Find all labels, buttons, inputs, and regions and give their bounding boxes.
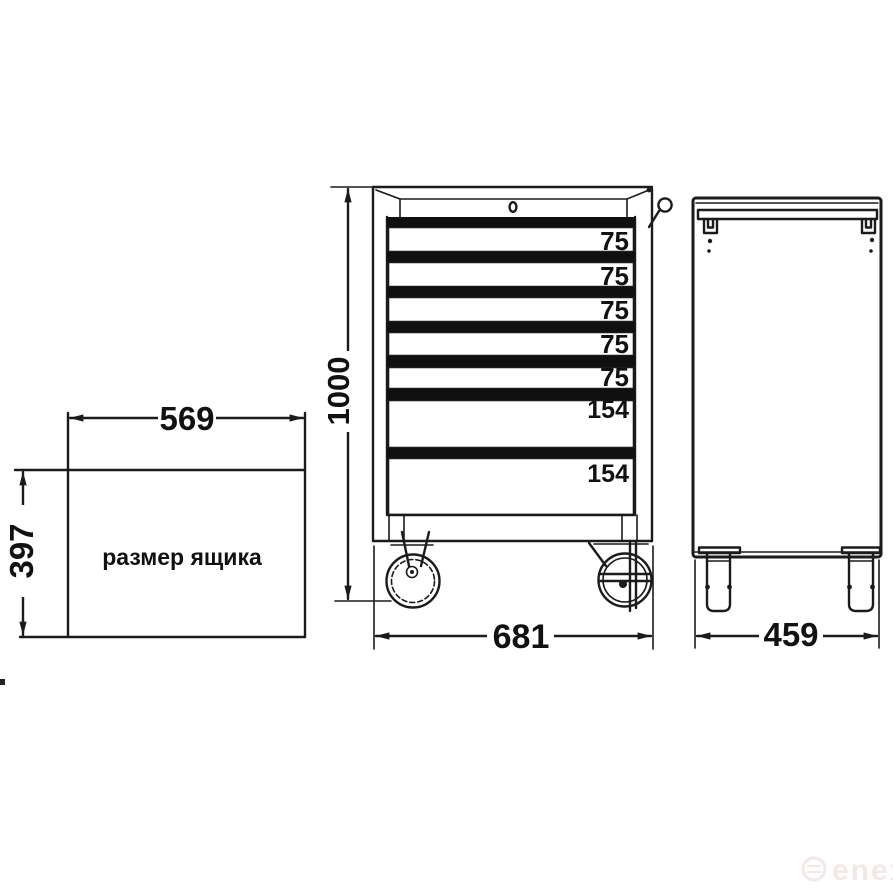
- dim-459: 459: [695, 560, 879, 653]
- watermark-logo-bars: [807, 866, 821, 872]
- left-axle-dot: [727, 585, 732, 590]
- drawer-height-label: 75: [600, 295, 629, 325]
- dim-label-569: 569: [159, 400, 214, 437]
- watermark: enex: [803, 854, 893, 887]
- dim-label-397: 397: [3, 523, 40, 578]
- watermark-text: enex: [832, 854, 893, 887]
- right-caster-fork-slant: [589, 543, 606, 566]
- top-tray: [376, 188, 651, 217]
- right-caster-hub-dot: [619, 580, 627, 588]
- drawer-handle: [387, 356, 635, 367]
- drawer-size-box-view: 569 397 размер ящика: [3, 400, 305, 637]
- drawer-height-label: 154: [587, 396, 629, 424]
- left-wheel-outer: [387, 555, 440, 608]
- dim-label-1000: 1000: [321, 357, 356, 426]
- left-caster-hub-dot: [410, 570, 414, 574]
- right-screw-dot: [870, 238, 874, 242]
- drawer-height-label: 154: [587, 460, 629, 488]
- left-screw-dot: [708, 239, 712, 243]
- dim-1000: 1000: [321, 187, 391, 601]
- drawer-front: [389, 228, 634, 252]
- key-ring: [658, 198, 671, 211]
- drawer-handle: [387, 287, 635, 297]
- right-caster-axle-bar: [600, 574, 651, 581]
- left-axle-dot: [705, 585, 710, 590]
- side-body: [693, 198, 881, 557]
- tool-trolley-dimension-drawing: 569 397 размер ящика 75: [0, 0, 893, 893]
- edge-print-mark: [0, 679, 5, 685]
- tray-lip-line: [376, 190, 649, 199]
- drawer-front: [389, 263, 634, 287]
- side-view: 459: [693, 198, 881, 653]
- drawer-handle: [387, 322, 635, 332]
- right-leg-plate: [842, 548, 880, 554]
- tray-corner-dot: [647, 188, 652, 193]
- drawer-handle: [387, 252, 635, 262]
- drawer-size-caption: размер ящика: [102, 544, 262, 570]
- side-top-rail: [698, 210, 877, 253]
- caster-plates: [391, 544, 648, 545]
- drawer-height-label: 75: [600, 261, 629, 291]
- keyhole-icon: [510, 202, 517, 212]
- dim-label-459: 459: [763, 616, 818, 653]
- drawer-handle: [387, 448, 635, 458]
- technical-drawing-page: 569 397 размер ящика 75: [0, 0, 893, 893]
- left-leg-plate: [699, 548, 740, 554]
- drawer-height-label: 75: [600, 226, 629, 256]
- right-screw-dot: [869, 249, 873, 253]
- drawer-handle: [387, 217, 635, 227]
- left-bracket-icon: [704, 219, 717, 233]
- watermark-logo-icon: [803, 858, 825, 880]
- base-leg-lines: [389, 515, 637, 541]
- right-caster: [589, 541, 652, 611]
- right-axle-dot: [847, 585, 852, 590]
- dim-label-681: 681: [493, 618, 550, 656]
- drawer-height-label: 75: [600, 329, 629, 359]
- rail-lines: [698, 210, 877, 219]
- left-screw-dot: [707, 249, 711, 253]
- drawer-front: [389, 298, 634, 322]
- drawer-height-label: 75: [600, 362, 629, 392]
- drawer-front: [389, 368, 634, 389]
- drawer-stack: 75 75 75 75 75 154 154: [387, 217, 635, 515]
- drawer-front: [389, 333, 634, 356]
- key-shaft: [649, 211, 659, 227]
- right-axle-dot: [870, 585, 875, 590]
- right-bracket-icon: [862, 219, 875, 233]
- left-caster: [387, 532, 440, 608]
- front-view: 75 75 75 75 75 154 154: [321, 187, 672, 656]
